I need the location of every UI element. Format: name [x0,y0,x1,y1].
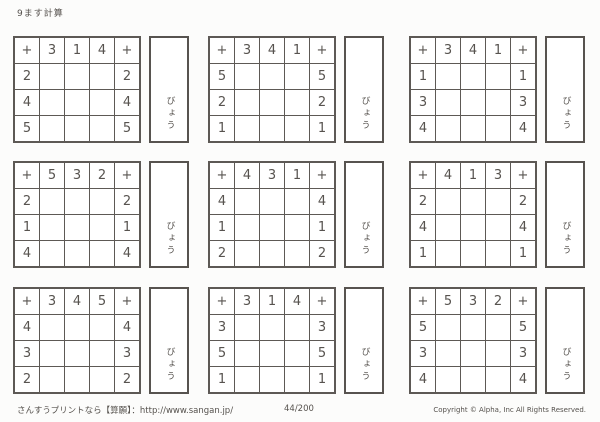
grid-cell: 1 [260,288,285,315]
grid-row: 11 [209,215,335,241]
grid-cell: 3 [14,341,40,367]
grid-cell: 1 [285,37,310,64]
grid-cell: 1 [209,116,235,143]
answer-cell-empty [65,90,90,116]
answer-cell-empty [90,215,115,241]
grid-cell: 4 [511,116,537,143]
grid-cell: 2 [115,64,141,90]
grid-cell: 1 [511,241,537,268]
grid-cell: 2 [115,367,141,394]
calc-block: +314+224455びょう [13,36,189,143]
grid-cell: 4 [285,288,310,315]
grid-cell: 4 [90,37,115,64]
grid-cell: + [14,288,40,315]
grid-cell: 1 [486,37,511,64]
grid-header-row: +413+ [410,162,536,189]
answer-cell-empty [260,241,285,268]
grid-cell: 5 [209,341,235,367]
answer-cell-empty [285,90,310,116]
grid-cell: 2 [310,90,336,116]
grid-row: 22 [14,64,140,90]
answer-cell-empty [40,241,65,268]
grid-cell: 1 [115,215,141,241]
grid-row: 44 [209,189,335,215]
calc-block: +532+221144びょう [13,161,189,268]
grid-header-row: +532+ [410,288,536,315]
calc-grid-table: +345+443322 [13,287,141,394]
grid-cell: + [310,288,336,315]
grid-cell: 4 [410,367,436,394]
grid-row: 11 [410,64,536,90]
footer-page-number: 44/200 [284,404,314,414]
grid-cell: 5 [310,341,336,367]
seconds-label: びょう [360,96,369,132]
grid-cell: 2 [511,189,537,215]
answer-cell-empty [461,367,486,394]
grid-cell: 3 [461,288,486,315]
grid-cell: + [310,162,336,189]
grid-row: 33 [410,341,536,367]
grid-cell: 1 [511,64,537,90]
grid-header-row: +341+ [410,37,536,64]
answer-cell-empty [486,367,511,394]
seconds-box: びょう [149,36,189,143]
grid-header-row: +431+ [209,162,335,189]
answer-cell-empty [436,90,461,116]
grid-cell: 4 [14,90,40,116]
grid-cell: 3 [410,341,436,367]
answer-cell-empty [461,64,486,90]
grid-cell: 4 [410,215,436,241]
answer-cell-empty [235,116,260,143]
grid-cell: 1 [209,367,235,394]
grid-cell: + [14,162,40,189]
grid-cell: 3 [260,162,285,189]
answer-cell-empty [461,341,486,367]
answer-cell-empty [40,341,65,367]
calc-grid-table: +532+553344 [409,287,537,394]
grid-cell: 3 [410,90,436,116]
answer-cell-empty [461,241,486,268]
grid-cell: 5 [511,315,537,341]
grid-cell: 4 [14,315,40,341]
grid-row: 22 [14,367,140,394]
answer-cell-empty [486,341,511,367]
grid-cell: + [511,288,537,315]
answer-cell-empty [90,64,115,90]
grid-cell: 1 [310,116,336,143]
calc-block: +341+552211びょう [208,36,384,143]
calc-block: +314+335511びょう [208,287,384,394]
answer-cell-empty [90,341,115,367]
grid-cell: + [115,162,141,189]
grid-cell: 4 [511,215,537,241]
grid-cell: + [511,162,537,189]
grid-cell: + [410,162,436,189]
grid-cell: 3 [65,162,90,189]
grid-cell: 4 [14,241,40,268]
calc-block: +345+443322びょう [13,287,189,394]
answer-cell-empty [260,189,285,215]
answer-cell-empty [486,241,511,268]
answer-cell-empty [90,116,115,143]
grid-row: 44 [14,315,140,341]
answer-cell-empty [90,90,115,116]
answer-cell-empty [235,215,260,241]
answer-cell-empty [436,64,461,90]
grid-row: 55 [209,64,335,90]
seconds-box: びょう [149,161,189,268]
answer-cell-empty [436,341,461,367]
grid-cell: 2 [90,162,115,189]
grid-cell: 1 [461,162,486,189]
seconds-box: びょう [149,287,189,394]
answer-cell-empty [40,189,65,215]
calc-grid-table: +341+552211 [208,36,336,143]
calc-block: +532+553344びょう [409,287,585,394]
footer-copyright: Copyright © Alpha, Inc All Rights Reserv… [433,406,586,414]
seconds-label: びょう [360,221,369,257]
grid-cell: 1 [410,241,436,268]
grid-cell: 2 [410,189,436,215]
answer-cell-empty [285,215,310,241]
grid-cell: + [310,37,336,64]
seconds-label: びょう [561,221,570,257]
grid-row: 55 [209,341,335,367]
grid-header-row: +314+ [14,37,140,64]
answer-cell-empty [65,189,90,215]
answer-cell-empty [285,367,310,394]
answer-cell-empty [260,116,285,143]
grid-cell: + [410,37,436,64]
grid-row: 44 [410,215,536,241]
grid-cell: 4 [436,162,461,189]
answer-cell-empty [90,241,115,268]
grid-cell: 2 [486,288,511,315]
answer-cell-empty [235,341,260,367]
answer-cell-empty [40,116,65,143]
grid-row: 33 [209,315,335,341]
answer-cell-empty [65,315,90,341]
calc-grid-table: +314+335511 [208,287,336,394]
answer-cell-empty [260,367,285,394]
grid-row: 22 [209,241,335,268]
grid-row: 44 [14,241,140,268]
grid-cell: 2 [115,189,141,215]
page-title: 9ます計算 [17,6,64,19]
grid-cell: 3 [235,288,260,315]
grid-cell: 4 [410,116,436,143]
answer-cell-empty [436,241,461,268]
grid-row: 44 [410,367,536,394]
grid-row: 11 [209,367,335,394]
answer-cell-empty [65,215,90,241]
answer-cell-empty [65,116,90,143]
grid-cell: 3 [511,90,537,116]
grid-cell: 4 [65,288,90,315]
answer-cell-empty [235,189,260,215]
seconds-label: びょう [360,347,369,383]
answer-cell-empty [235,90,260,116]
grid-cell: + [209,37,235,64]
seconds-label: びょう [165,221,174,257]
answer-cell-empty [65,341,90,367]
grid-row: 33 [410,90,536,116]
grid-cell: 3 [209,315,235,341]
grid-cell: 1 [209,215,235,241]
answer-cell-empty [235,64,260,90]
grid-cell: 3 [235,37,260,64]
seconds-box: びょう [344,287,384,394]
grid-cell: 1 [65,37,90,64]
grid-row: 11 [14,215,140,241]
grid-cell: 4 [260,37,285,64]
grid-cell: 1 [410,64,436,90]
answer-cell-empty [436,189,461,215]
answer-cell-empty [40,90,65,116]
answer-cell-empty [90,315,115,341]
answer-cell-empty [461,215,486,241]
answer-cell-empty [486,315,511,341]
calc-grid-table: +314+224455 [13,36,141,143]
answer-cell-empty [461,90,486,116]
grid-row: 44 [410,116,536,143]
grid-cell: 5 [90,288,115,315]
answer-cell-empty [486,64,511,90]
grid-row: 22 [410,189,536,215]
calc-grid-table: +341+113344 [409,36,537,143]
answer-cell-empty [235,367,260,394]
grid-cell: 3 [511,341,537,367]
answer-cell-empty [285,341,310,367]
grid-cell: 2 [14,64,40,90]
grid-cell: 2 [310,241,336,268]
answer-cell-empty [90,367,115,394]
grid-cell: 4 [461,37,486,64]
grid-cell: 1 [285,162,310,189]
answer-cell-empty [285,64,310,90]
calc-block: +341+113344びょう [409,36,585,143]
seconds-label: びょう [165,96,174,132]
answer-cell-empty [486,189,511,215]
grid-cell: + [14,37,40,64]
grid-header-row: +341+ [209,37,335,64]
answer-cell-empty [65,64,90,90]
answer-cell-empty [285,116,310,143]
answer-cell-empty [285,241,310,268]
answer-cell-empty [436,367,461,394]
grid-cell: 1 [14,215,40,241]
grid-header-row: +345+ [14,288,140,315]
answer-cell-empty [40,367,65,394]
grid-row: 33 [14,341,140,367]
answer-cell-empty [486,215,511,241]
answer-cell-empty [486,90,511,116]
grid-cell: 5 [310,64,336,90]
grid-cell: 4 [511,367,537,394]
grid-cell: 3 [436,37,461,64]
grid-row: 55 [410,315,536,341]
answer-cell-empty [90,189,115,215]
grid-cell: 1 [310,367,336,394]
grid-row: 22 [209,90,335,116]
grid-cell: 3 [40,37,65,64]
seconds-box: びょう [545,287,585,394]
calc-block: +431+441122びょう [208,161,384,268]
grid-header-row: +532+ [14,162,140,189]
grid-cell: 4 [115,90,141,116]
answer-cell-empty [436,315,461,341]
grid-row: 22 [14,189,140,215]
grid-cell: 3 [310,315,336,341]
grid-cell: 5 [410,315,436,341]
calc-grid-table: +431+441122 [208,161,336,268]
grid-cell: 4 [209,189,235,215]
grid-cell: 5 [115,116,141,143]
grid-cell: 5 [40,162,65,189]
grid-cell: 2 [14,367,40,394]
grid-cell: 1 [310,215,336,241]
answer-cell-empty [285,315,310,341]
grid-cell: + [209,288,235,315]
answer-cell-empty [436,116,461,143]
grid-cell: 3 [115,341,141,367]
calc-grid-table: +413+224411 [409,161,537,268]
seconds-box: びょう [545,36,585,143]
grid-cell: + [115,37,141,64]
grid-cell: 4 [115,315,141,341]
answer-cell-empty [285,189,310,215]
grid-cell: 5 [436,288,461,315]
answer-cell-empty [461,315,486,341]
answer-cell-empty [65,367,90,394]
grid-cell: + [209,162,235,189]
grid-cell: 5 [209,64,235,90]
grid-cell: 2 [209,90,235,116]
answer-cell-empty [260,90,285,116]
grid-cell: 4 [235,162,260,189]
seconds-label: びょう [561,96,570,132]
grid-row: 11 [410,241,536,268]
answer-cell-empty [436,215,461,241]
answer-cell-empty [65,241,90,268]
footer-site-text: さんすうプリントなら【算願】：http://www.sangan.jp/ [17,404,233,416]
answer-cell-empty [235,315,260,341]
answer-cell-empty [260,341,285,367]
seconds-box: びょう [545,161,585,268]
grid-row: 55 [14,116,140,143]
answer-cell-empty [461,116,486,143]
grid-cell: 2 [14,189,40,215]
grid-cell: 4 [310,189,336,215]
grid-cell: 4 [115,241,141,268]
grid-header-row: +314+ [209,288,335,315]
seconds-box: びょう [344,161,384,268]
answer-cell-empty [40,64,65,90]
answer-cell-empty [40,315,65,341]
seconds-label: びょう [561,347,570,383]
calc-grid-table: +532+221144 [13,161,141,268]
grid-cell: 5 [14,116,40,143]
answer-cell-empty [461,189,486,215]
grid-cell: 2 [209,241,235,268]
answer-cell-empty [260,315,285,341]
seconds-label: びょう [165,347,174,383]
grid-cell: + [115,288,141,315]
seconds-box: びょう [344,36,384,143]
answer-cell-empty [260,215,285,241]
calc-block: +413+224411びょう [409,161,585,268]
answer-cell-empty [235,241,260,268]
answer-cell-empty [260,64,285,90]
grid-cell: + [410,288,436,315]
grid-row: 11 [209,116,335,143]
grid-cell: 3 [486,162,511,189]
grid-row: 44 [14,90,140,116]
answer-cell-empty [486,116,511,143]
answer-cell-empty [40,215,65,241]
grid-cell: 3 [40,288,65,315]
grid-cell: + [511,37,537,64]
